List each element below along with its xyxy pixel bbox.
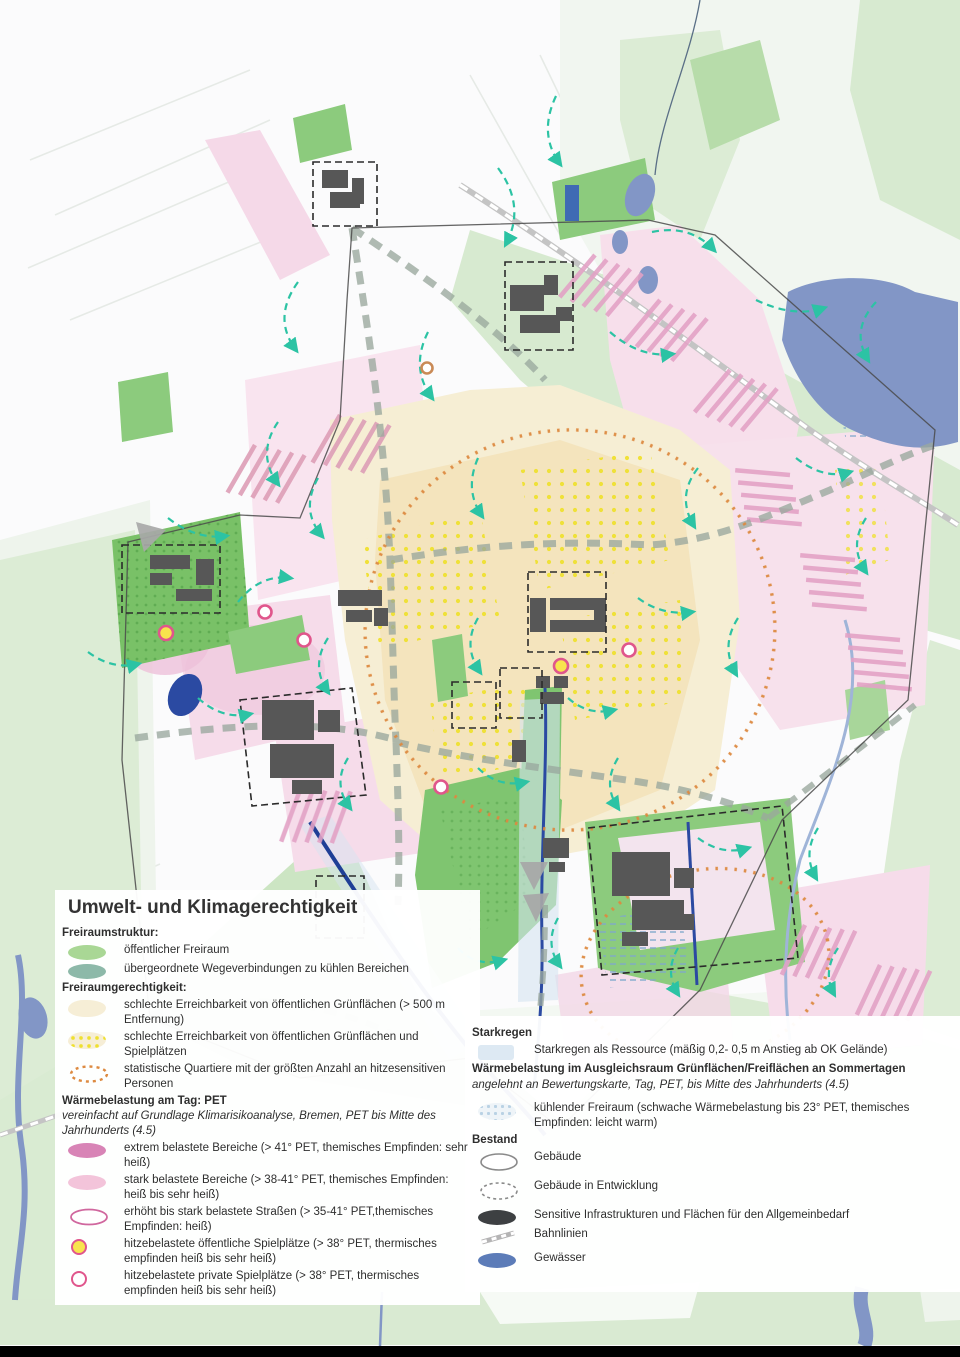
legend-item-buildings: Gebäude xyxy=(472,1150,958,1177)
water-bodies-swatch xyxy=(478,1253,516,1268)
legend-header-freiraumgerechtigkeit: Freiraumgerechtigkeit: xyxy=(62,981,474,996)
heat-public-playgrounds-swatch xyxy=(71,1239,87,1255)
legend-item-label: schlechte Erreichbarkeit von öffentliche… xyxy=(124,1030,474,1060)
legend-item-label: extrem belastete Bereiche (> 41° PET, th… xyxy=(124,1141,474,1171)
legend-item-strong-heat-areas: stark belastete Bereiche (> 38-41° PET, … xyxy=(62,1173,474,1203)
rail-lines-swatch xyxy=(478,1229,520,1245)
legend-item-cooling-open-space: kühlender Freiraum (schwache Wärmebelast… xyxy=(472,1101,958,1131)
legend-item-label: Sensitive Infrastrukturen und Flächen fü… xyxy=(534,1208,958,1223)
sensitive-infrastructure-swatch xyxy=(478,1210,516,1225)
legend-item-label: Gebäude in Entwicklung xyxy=(534,1179,958,1194)
legend-note-klimarisikoanalyse: vereinfacht auf Grundlage Klimarisikoana… xyxy=(62,1109,474,1139)
legend-item-label: Bahnlinien xyxy=(534,1227,958,1242)
buildings-swatch xyxy=(478,1152,520,1172)
legend-item-poor-access-green-playgrounds: schlechte Erreichbarkeit von öffentliche… xyxy=(62,1030,474,1060)
page-title: Umwelt- und Klimagerechtigkeit xyxy=(68,897,357,919)
legend-item-cool-connections: übergeordnete Wegeverbindungen zu kühlen… xyxy=(62,962,474,979)
legend-item-label: Gebäude xyxy=(534,1150,958,1165)
heavy-rain-resource-swatch xyxy=(478,1045,514,1060)
legend-item-buildings-in-development: Gebäude in Entwicklung xyxy=(472,1179,958,1206)
poor-access-green-playgrounds-swatch xyxy=(68,1032,106,1049)
heat-streets-swatch xyxy=(68,1207,110,1227)
legend-note-bewertungskarte: angelehnt an Bewertungskarte, Tag, PET, … xyxy=(472,1078,958,1093)
legend-item-public-open-space: öffentlicher Freiraum xyxy=(62,943,474,960)
legend-item-label: hitzebelastete öffentliche Spielplätze (… xyxy=(124,1237,474,1267)
poor-access-green-swatch xyxy=(68,1000,106,1017)
legend-right: Starkregen Starkregen als Ressource (mäß… xyxy=(472,1024,958,1270)
legend-item-label: Gewässer xyxy=(534,1251,958,1266)
bottom-black-bar xyxy=(0,1346,960,1357)
legend-item-label: kühlender Freiraum (schwache Wärmebelast… xyxy=(534,1101,958,1131)
legend-item-heat-public-playgrounds: hitzebelastete öffentliche Spielplätze (… xyxy=(62,1237,474,1267)
legend-item-heat-private-playgrounds: hitzebelastete private Spielplätze (> 38… xyxy=(62,1269,474,1299)
legend-item-label: statistische Quartiere mit der größten A… xyxy=(124,1062,474,1092)
heat-sensitive-quarters-swatch xyxy=(68,1064,110,1084)
legend-item-water-bodies: Gewässer xyxy=(472,1251,958,1268)
legend-item-sensitive-infrastructure: Sensitive Infrastrukturen und Flächen fü… xyxy=(472,1208,958,1225)
legend-header-waermebelastung-ausgleichsraum: Wärmebelastung im Ausgleichsraum Grünflä… xyxy=(472,1062,958,1077)
legend-item-heat-streets: erhöht bis stark belastete Straßen (> 35… xyxy=(62,1205,474,1235)
legend-header-waermebelastung-tag: Wärmebelastung am Tag: PET xyxy=(62,1094,474,1109)
legend-item-label: Starkregen als Ressource (mäßig 0,2- 0,5… xyxy=(534,1043,958,1058)
legend-item-label: stark belastete Bereiche (> 38-41° PET, … xyxy=(124,1173,474,1203)
legend-item-rail-lines: Bahnlinien xyxy=(472,1227,958,1250)
legend-item-heat-sensitive-quarters: statistische Quartiere mit der größten A… xyxy=(62,1062,474,1092)
heat-private-playgrounds-swatch xyxy=(71,1271,87,1287)
legend-header-freiraumstruktur: Freiraumstruktur: xyxy=(62,926,474,941)
legend-header-starkregen: Starkregen xyxy=(472,1026,958,1041)
legend-item-heavy-rain-resource: Starkregen als Ressource (mäßig 0,2- 0,5… xyxy=(472,1043,958,1060)
legend-item-extreme-heat-areas: extrem belastete Bereiche (> 41° PET, th… xyxy=(62,1141,474,1171)
legend-header-bestand: Bestand xyxy=(472,1133,958,1148)
legend-item-label: übergeordnete Wegeverbindungen zu kühlen… xyxy=(124,962,474,977)
legend-item-label: schlechte Erreichbarkeit von öffentliche… xyxy=(124,998,474,1028)
cool-connections-swatch xyxy=(68,964,106,979)
cooling-open-space-swatch xyxy=(478,1103,516,1120)
legend-item-poor-access-green: schlechte Erreichbarkeit von öffentliche… xyxy=(62,998,474,1028)
legend-item-label: öffentlicher Freiraum xyxy=(124,943,474,958)
extreme-heat-swatch xyxy=(68,1143,106,1158)
legend-left: Freiraumstruktur: öffentlicher Freiraum … xyxy=(62,924,474,1301)
legend-item-label: hitzebelastete private Spielplätze (> 38… xyxy=(124,1269,474,1299)
public-open-space-swatch xyxy=(68,945,106,960)
climate-justice-map-page: Umwelt- und Klimagerechtigkeit Freiraums… xyxy=(0,0,960,1357)
buildings-in-development-swatch xyxy=(478,1181,520,1201)
strong-heat-swatch xyxy=(68,1175,106,1190)
legend-item-label: erhöht bis stark belastete Straßen (> 35… xyxy=(124,1205,474,1235)
